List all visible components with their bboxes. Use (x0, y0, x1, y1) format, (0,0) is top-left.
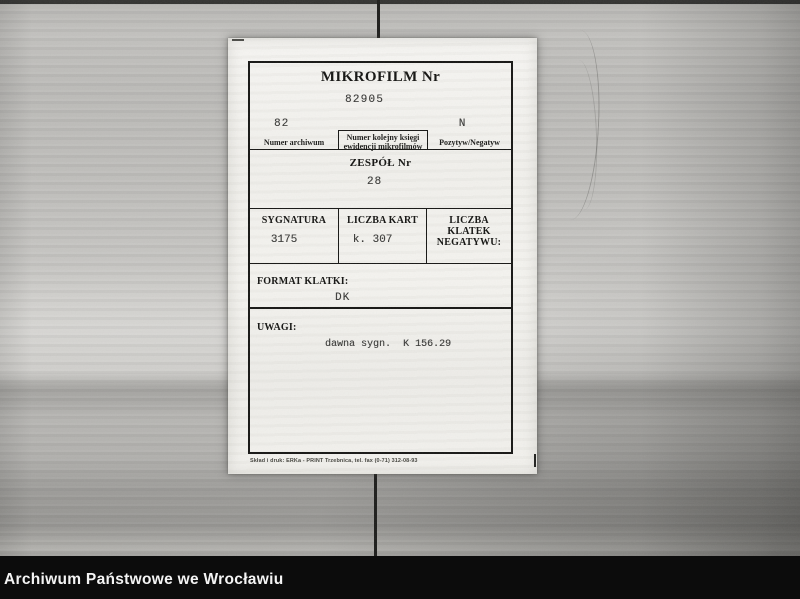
liczba-klatek-label-line2: NEGATYWU: (427, 237, 511, 248)
sygnatura-label: SYGNATURA (250, 215, 338, 226)
format-klatki-label: FORMAT KLATKI: (257, 276, 348, 287)
registration-line-bottom (374, 474, 377, 556)
liczba-kart-label: LICZBA KART (339, 215, 426, 226)
register-number-cell: Numer kolejny księgi ewidencji mikrofilm… (338, 120, 428, 149)
register-label-line1: Numer kolejny księgi (339, 133, 427, 142)
uwagi-label: UWAGI: (257, 322, 297, 333)
archive-number-cell: 82 Numer archiwum (250, 120, 338, 149)
liczba-kart-value: k. 307 (329, 234, 416, 246)
caption-text: Archiwum Państwowe we Wrocławiu (4, 571, 283, 589)
details-row: SYGNATURA 3175 LICZBA KART k. 307 LICZBA… (250, 209, 511, 264)
printer-note: Skład i druk: ERKa - PRINT Trzebnica, te… (250, 457, 406, 463)
registration-line-top (377, 0, 380, 38)
caption-bar: Archiwum Państwowe we Wrocławiu (0, 556, 800, 599)
sygnatura-value: 3175 (240, 234, 328, 246)
liczba-klatek-label-line1: LICZBA KLATEK (427, 215, 511, 237)
top-edge-strip (0, 0, 800, 4)
uwagi-row: UWAGI: dawna sygn. K 156.29 (250, 309, 511, 452)
card-form-table: MIKROFILM Nr 82905 82 Numer archiwum Num… (248, 61, 513, 454)
microfilm-card: MIKROFILM Nr 82905 82 Numer archiwum Num… (228, 38, 537, 474)
register-number-box: Numer kolejny księgi ewidencji mikrofilm… (338, 130, 428, 150)
archive-number-row: 82 Numer archiwum Numer kolejny księgi e… (250, 120, 511, 150)
zespol-value: 28 (244, 176, 505, 188)
scanned-photo-canvas: MIKROFILM Nr 82905 82 Numer archiwum Num… (0, 0, 800, 599)
positive-negative-value: N (421, 118, 504, 130)
archive-number-value: 82 (250, 118, 338, 130)
zespol-row: ZESPÓŁ Nr 28 (250, 150, 511, 209)
title-row: MIKROFILM Nr 82905 (250, 63, 511, 120)
microfilm-number-value: 82905 (234, 94, 495, 106)
zespol-label: ZESPÓŁ Nr (250, 157, 511, 169)
positive-negative-label: Pozytyw/Negatyw (428, 138, 511, 149)
card-edge-tick (534, 454, 536, 467)
archive-number-label: Numer archiwum (250, 138, 338, 149)
sygnatura-cell: SYGNATURA 3175 (250, 209, 339, 263)
liczba-kart-cell: LICZBA KART k. 307 (339, 209, 427, 263)
positive-negative-cell: N Pozytyw/Negatyw (428, 120, 511, 149)
card-corner-mark (232, 39, 244, 41)
card-title: MIKROFILM Nr (250, 69, 511, 86)
uwagi-value: dawna sygn. K 156.29 (325, 339, 511, 350)
liczba-klatek-cell: LICZBA KLATEK NEGATYWU: (427, 209, 511, 263)
format-klatki-row: FORMAT KLATKI: DK (250, 264, 511, 309)
format-klatki-value: DK (335, 292, 511, 304)
